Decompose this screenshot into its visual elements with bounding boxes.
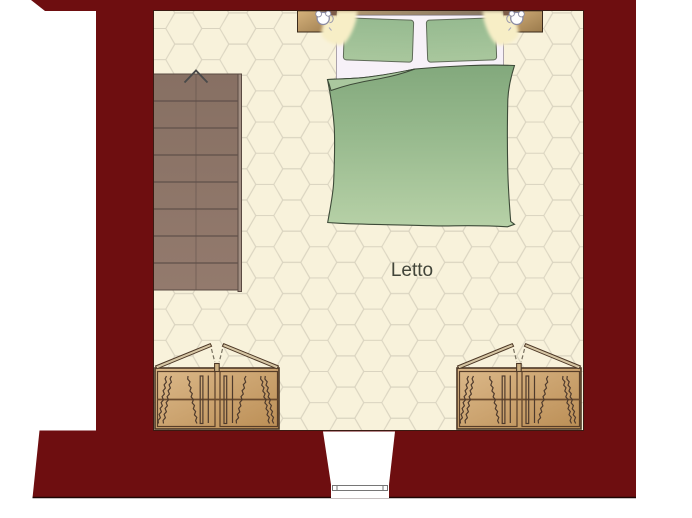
- svg-text:Letto: Letto: [391, 260, 433, 281]
